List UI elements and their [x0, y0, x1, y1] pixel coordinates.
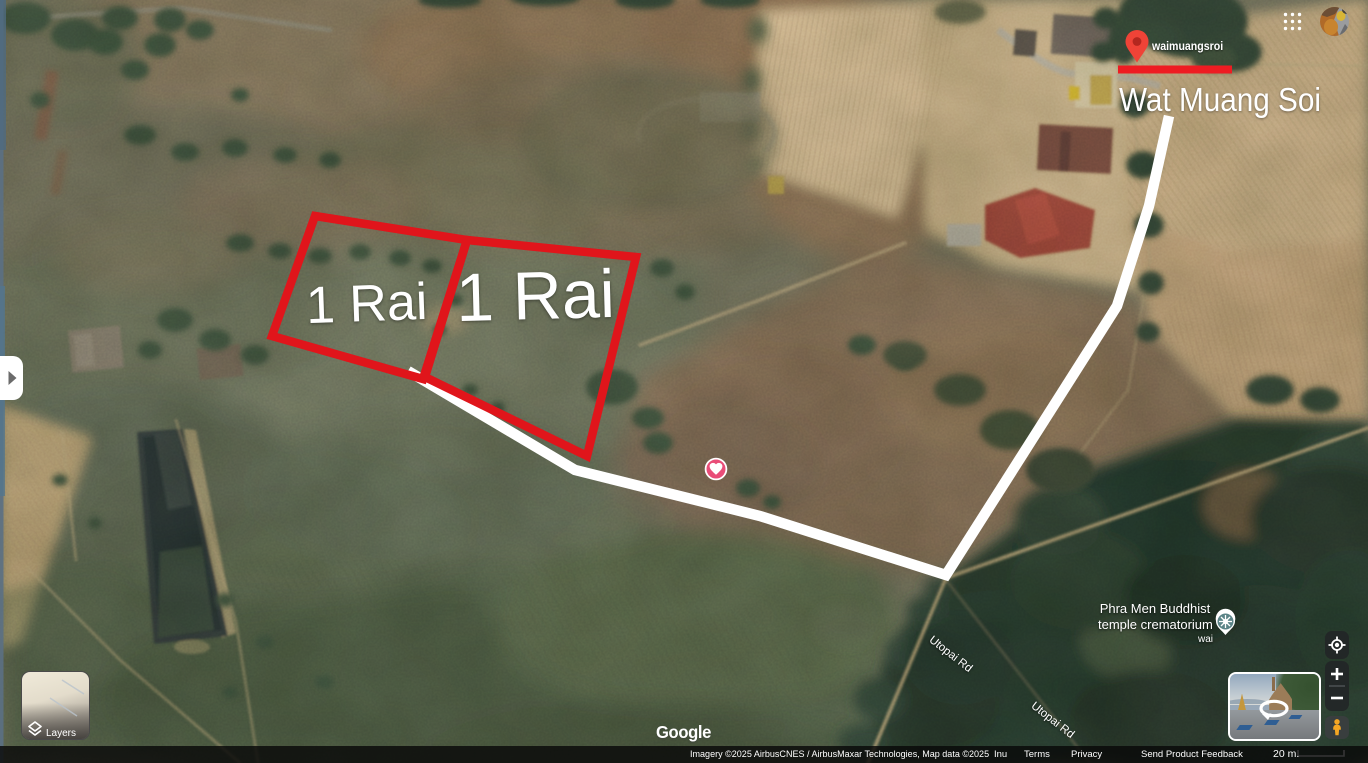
svg-text:Layers: Layers [46, 728, 76, 739]
